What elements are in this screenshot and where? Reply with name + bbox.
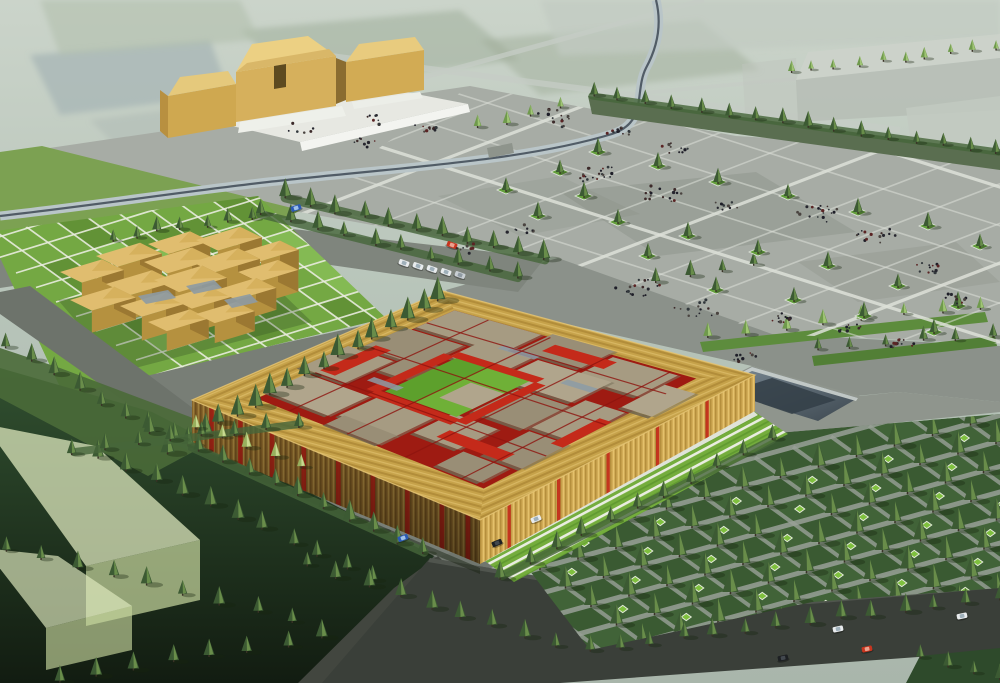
person-dot [547, 113, 550, 116]
tree-shadow [156, 229, 170, 233]
tree-shadow [943, 144, 954, 147]
person-dot [672, 191, 675, 194]
person-dot [912, 342, 915, 345]
tree-shadow [227, 220, 240, 224]
person-dot [680, 147, 682, 149]
person-dot [602, 168, 604, 170]
person-dot [846, 329, 849, 332]
person-dot [377, 119, 379, 121]
person-dot [312, 127, 314, 129]
tree-shadow [793, 300, 806, 304]
person-dot [560, 115, 562, 117]
person-dot [699, 308, 701, 310]
tree-shadow [301, 466, 313, 470]
tree-shadow [772, 437, 786, 441]
person-dot [422, 126, 424, 128]
person-dot [645, 192, 647, 194]
person-dot [954, 295, 956, 297]
tree-shadow [980, 308, 991, 311]
person-dot [856, 323, 858, 325]
person-dot [556, 109, 558, 111]
tree-shadow [916, 142, 927, 145]
tree-shadow [136, 236, 147, 239]
person-dot [367, 141, 370, 144]
tree-shadow [343, 233, 356, 237]
person-dot [670, 142, 672, 144]
tree-shadow [942, 311, 955, 315]
person-dot [369, 114, 371, 116]
person-dot [468, 252, 471, 255]
tree-shadow [489, 269, 503, 273]
person-dot [670, 200, 672, 202]
tree-shadow [903, 313, 913, 316]
person-dot [882, 234, 885, 237]
tree-shadow [743, 453, 757, 457]
person-dot [638, 279, 640, 281]
person-dot [506, 230, 509, 233]
tree-shadow [430, 258, 443, 262]
person-dot [826, 221, 828, 223]
person-dot [602, 174, 604, 176]
tree-shadow [620, 647, 634, 651]
tree-shadow [610, 519, 624, 523]
person-dot [821, 209, 824, 212]
person-dot [687, 308, 690, 311]
person-dot [296, 130, 299, 133]
person-dot [796, 211, 799, 214]
tree-shadow [649, 643, 662, 647]
tree-shadow [701, 110, 714, 114]
tree-shadow [861, 134, 875, 138]
person-dot [833, 211, 836, 214]
person-dot [466, 245, 469, 248]
person-dot [644, 294, 646, 296]
person-dot [819, 205, 821, 207]
tree-shadow [888, 138, 900, 141]
tree-shadow [207, 226, 218, 229]
person-dot [643, 295, 645, 297]
person-dot [897, 339, 900, 342]
tree-shadow [138, 442, 151, 446]
person-dot [582, 173, 584, 175]
person-dot [681, 151, 683, 153]
person-dot [621, 127, 623, 129]
person-dot [919, 270, 921, 272]
person-dot [586, 178, 589, 181]
tree-shadow [716, 465, 729, 469]
person-dot [716, 312, 719, 315]
person-dot [516, 229, 518, 231]
tree-shadow [671, 106, 683, 110]
tree-shadow [755, 118, 767, 122]
person-dot [778, 317, 780, 319]
person-dot [720, 202, 723, 205]
person-dot [687, 315, 689, 317]
person-dot [703, 301, 706, 304]
tree-shadow [594, 94, 607, 98]
person-dot [731, 201, 733, 203]
person-dot [741, 357, 744, 360]
person-dot [658, 284, 661, 287]
person-dot [523, 223, 526, 226]
person-dot [656, 285, 658, 287]
person-dot [680, 192, 683, 195]
person-dot [610, 172, 613, 175]
person-dot [838, 330, 841, 333]
tree-shadow [745, 631, 759, 635]
person-dot [633, 284, 636, 287]
person-dot [363, 143, 366, 146]
person-dot [650, 195, 652, 197]
person-dot [614, 286, 617, 289]
person-dot [863, 231, 866, 234]
tree-shadow [924, 57, 935, 60]
tree-shadow [655, 280, 669, 284]
person-dot [737, 358, 739, 360]
tree-shadow [817, 348, 828, 351]
person-dot [650, 192, 653, 195]
tree-shadow [787, 196, 799, 200]
tree-shadow [477, 126, 489, 129]
tree-shadow [222, 436, 234, 440]
person-dot [374, 140, 376, 142]
tree-shadow [307, 564, 320, 568]
tree-shadow [292, 620, 306, 624]
person-dot [754, 355, 757, 358]
person-dot [309, 130, 312, 133]
person-dot [865, 238, 868, 241]
tree-shadow [883, 60, 892, 63]
person-dot [469, 247, 472, 250]
person-dot [600, 170, 602, 172]
person-dot [715, 202, 717, 204]
person-dot [378, 123, 381, 126]
tree-shadow [182, 593, 196, 597]
tree-shadow [722, 270, 733, 273]
person-dot [611, 166, 613, 168]
facade-red-slit [557, 478, 560, 521]
tree-shadow [753, 263, 765, 267]
tree-shadow [5, 346, 19, 350]
person-dot [857, 327, 860, 330]
tree-shadow [113, 240, 123, 243]
person-dot [698, 301, 701, 304]
person-dot [579, 177, 581, 179]
person-dot [696, 315, 698, 317]
tree-shadow [506, 123, 518, 127]
person-dot [680, 308, 682, 310]
person-dot [817, 207, 820, 210]
person-dot [673, 199, 676, 202]
person-dot [963, 298, 966, 301]
facade-red-slit [656, 425, 659, 466]
person-dot [582, 180, 584, 182]
person-dot [674, 307, 676, 309]
person-dot [733, 359, 735, 361]
person-dot [808, 215, 810, 217]
person-dot [607, 166, 610, 169]
person-dot [827, 206, 829, 208]
tree-shadow [505, 190, 518, 194]
tree-shadow [645, 102, 658, 106]
person-dot [547, 109, 549, 111]
person-dot [698, 312, 700, 314]
person-dot [831, 212, 833, 214]
person-dot [423, 131, 425, 133]
person-dot [892, 347, 894, 349]
person-dot [856, 234, 858, 236]
person-dot [647, 287, 650, 290]
tree-shadow [933, 331, 947, 335]
person-dot [683, 148, 686, 151]
person-dot [460, 249, 462, 251]
person-dot [641, 286, 644, 289]
person-dot [644, 198, 647, 201]
tree-shadow [811, 69, 819, 71]
person-dot [603, 176, 605, 178]
person-dot [870, 233, 873, 236]
person-dot [861, 230, 863, 232]
tree-shadow [859, 65, 868, 68]
person-dot [561, 126, 564, 129]
person-dot [777, 315, 779, 317]
person-dot [740, 354, 742, 356]
person-dot [783, 321, 785, 323]
tree-shadow [833, 129, 846, 133]
person-dot [303, 131, 306, 134]
person-dot [947, 292, 950, 295]
person-dot [749, 352, 751, 354]
rendering-stage: Aerial architectural rendering of a cult… [0, 0, 1000, 683]
person-dot [879, 242, 881, 244]
person-dot [366, 146, 369, 149]
facade-red-slit [508, 504, 511, 549]
tree-shadow [717, 181, 731, 185]
person-dot [354, 141, 356, 143]
person-dot [668, 152, 670, 154]
person-dot [729, 207, 731, 209]
person-dot [669, 197, 672, 200]
person-dot [622, 133, 624, 135]
person-dot [903, 339, 905, 341]
person-dot [568, 118, 570, 120]
person-dot [425, 129, 428, 132]
tree-shadow [786, 328, 799, 332]
person-dot [822, 216, 825, 219]
person-dot [828, 209, 830, 211]
person-dot [955, 298, 958, 301]
tree-shadow [923, 338, 936, 342]
person-dot [888, 228, 891, 231]
person-dot [786, 317, 789, 320]
person-dot [888, 233, 890, 235]
person-dot [878, 235, 881, 238]
tree-shadow [560, 106, 570, 109]
tree-shadow [6, 549, 19, 553]
tree-shadow [955, 339, 967, 343]
masterplan-aerial-rendering: Aerial architectural rendering of a cult… [0, 0, 1000, 683]
tree-shadow [559, 172, 571, 176]
person-dot [560, 120, 563, 123]
person-dot [911, 345, 913, 347]
tree-shadow [970, 149, 983, 153]
person-dot [661, 145, 664, 148]
person-dot [687, 148, 689, 150]
person-dot [288, 130, 290, 132]
person-dot [670, 146, 672, 148]
person-dot [845, 326, 848, 329]
tree-shadow [555, 645, 568, 649]
tree-shadow [101, 403, 115, 407]
person-dot [359, 137, 361, 139]
person-dot [472, 242, 475, 245]
tree-shadow [715, 289, 729, 293]
person-dot [429, 128, 431, 130]
person-dot [606, 132, 609, 135]
person-dot [629, 286, 632, 289]
person-dot [628, 130, 631, 133]
person-dot [735, 354, 738, 357]
person-dot [805, 205, 808, 208]
person-dot [817, 216, 819, 218]
tree-shadow [897, 286, 910, 290]
person-dot [937, 264, 940, 267]
person-dot [537, 112, 540, 115]
person-dot [434, 129, 437, 132]
tree-shadow [252, 218, 263, 221]
person-dot [596, 178, 598, 180]
person-dot [717, 207, 719, 209]
person-dot [678, 151, 680, 153]
tree-shadow [833, 68, 842, 71]
tree-shadow [179, 228, 190, 231]
person-dot [531, 229, 533, 231]
person-dot [921, 262, 923, 264]
person-dot [894, 234, 897, 237]
person-dot [647, 279, 649, 281]
person-dot [526, 231, 529, 234]
tree-shadow [920, 656, 932, 660]
hall-doorway [274, 64, 286, 89]
person-dot [927, 271, 929, 273]
person-dot [704, 298, 707, 301]
person-dot [462, 247, 464, 249]
person-dot [658, 187, 661, 190]
facade-red-slit [607, 452, 610, 494]
person-dot [662, 196, 664, 198]
person-dot [291, 122, 294, 125]
tree-shadow [729, 115, 742, 119]
person-dot [901, 343, 903, 345]
person-dot [628, 133, 630, 135]
person-dot [598, 173, 600, 175]
person-dot [372, 119, 375, 122]
tree-shadow [647, 256, 660, 260]
person-dot [890, 345, 893, 348]
person-dot [823, 212, 825, 214]
person-dot [552, 120, 555, 123]
person-dot [676, 192, 678, 194]
person-dot [526, 228, 528, 230]
tree-shadow [347, 567, 361, 571]
tree-shadow [933, 607, 946, 611]
facade-red-slit [706, 399, 709, 438]
tree-shadow [201, 434, 214, 438]
person-dot [609, 176, 611, 178]
person-dot [934, 269, 937, 272]
tree-shadow [745, 333, 759, 337]
person-dot [375, 114, 378, 117]
person-dot [648, 198, 651, 201]
person-dot [929, 266, 931, 268]
tree-shadow [791, 71, 802, 74]
tree-shadow [530, 115, 540, 118]
person-dot [356, 140, 358, 142]
person-dot [456, 247, 459, 250]
person-dot [932, 265, 934, 267]
tree-shadow [757, 252, 770, 256]
tree-shadow [979, 246, 991, 250]
person-dot [928, 264, 930, 266]
tree-shadow [972, 50, 982, 53]
person-dot [592, 177, 594, 179]
tree-shadow [950, 52, 958, 55]
person-dot [956, 302, 958, 304]
person-dot [612, 131, 614, 133]
tree-shadow [905, 61, 914, 64]
person-dot [781, 312, 783, 314]
tree-shadow [782, 121, 796, 125]
tree-shadow [298, 425, 312, 429]
tree-shadow [849, 347, 859, 350]
person-dot [631, 293, 634, 296]
person-dot [772, 320, 774, 322]
person-dot [707, 307, 709, 309]
person-dot [950, 293, 953, 296]
person-dot [414, 124, 416, 126]
tree-shadow [40, 557, 53, 561]
person-dot [627, 290, 630, 293]
person-dot [588, 167, 591, 170]
person-dot [932, 270, 934, 272]
person-dot [811, 206, 814, 209]
tree-shadow [616, 98, 628, 102]
person-dot [567, 115, 570, 118]
person-dot [721, 209, 723, 211]
tree-shadow [195, 427, 208, 431]
person-dot [711, 315, 713, 317]
person-dot [736, 207, 738, 209]
person-dot [673, 188, 676, 191]
person-dot [961, 302, 963, 304]
person-dot [945, 297, 947, 299]
person-dot [880, 232, 882, 234]
person-dot [751, 353, 754, 356]
person-dot [643, 279, 646, 282]
person-dot [894, 342, 897, 345]
person-dot [836, 208, 839, 211]
person-dot [552, 117, 554, 119]
person-dot [848, 327, 850, 329]
tree-shadow [617, 222, 630, 226]
hall-left-side [160, 90, 168, 138]
tree-shadow [400, 247, 414, 251]
person-dot [916, 264, 918, 266]
tree-shadow [657, 165, 671, 169]
person-dot [616, 128, 619, 131]
hall-gap [336, 58, 346, 104]
person-dot [649, 184, 652, 187]
